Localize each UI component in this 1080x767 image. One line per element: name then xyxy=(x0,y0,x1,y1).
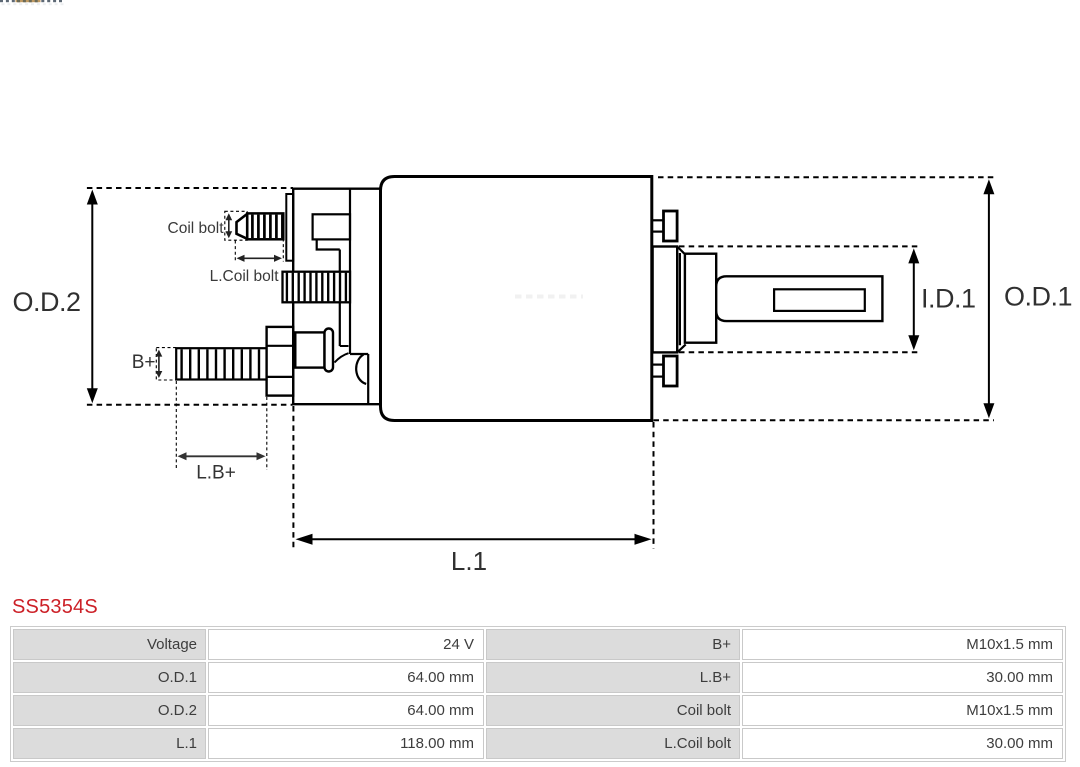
svg-text:O.D.2: O.D.2 xyxy=(12,287,80,317)
svg-text:O.D.1: O.D.1 xyxy=(1004,282,1072,312)
svg-text:I.D.1: I.D.1 xyxy=(921,284,976,314)
svg-text:L.Coil bolt: L.Coil bolt xyxy=(210,268,280,285)
svg-text:L.1: L.1 xyxy=(451,546,487,576)
svg-text:B+: B+ xyxy=(132,352,156,373)
svg-text:Coil bolt: Coil bolt xyxy=(168,220,225,237)
svg-text:L.B+: L.B+ xyxy=(196,463,236,484)
